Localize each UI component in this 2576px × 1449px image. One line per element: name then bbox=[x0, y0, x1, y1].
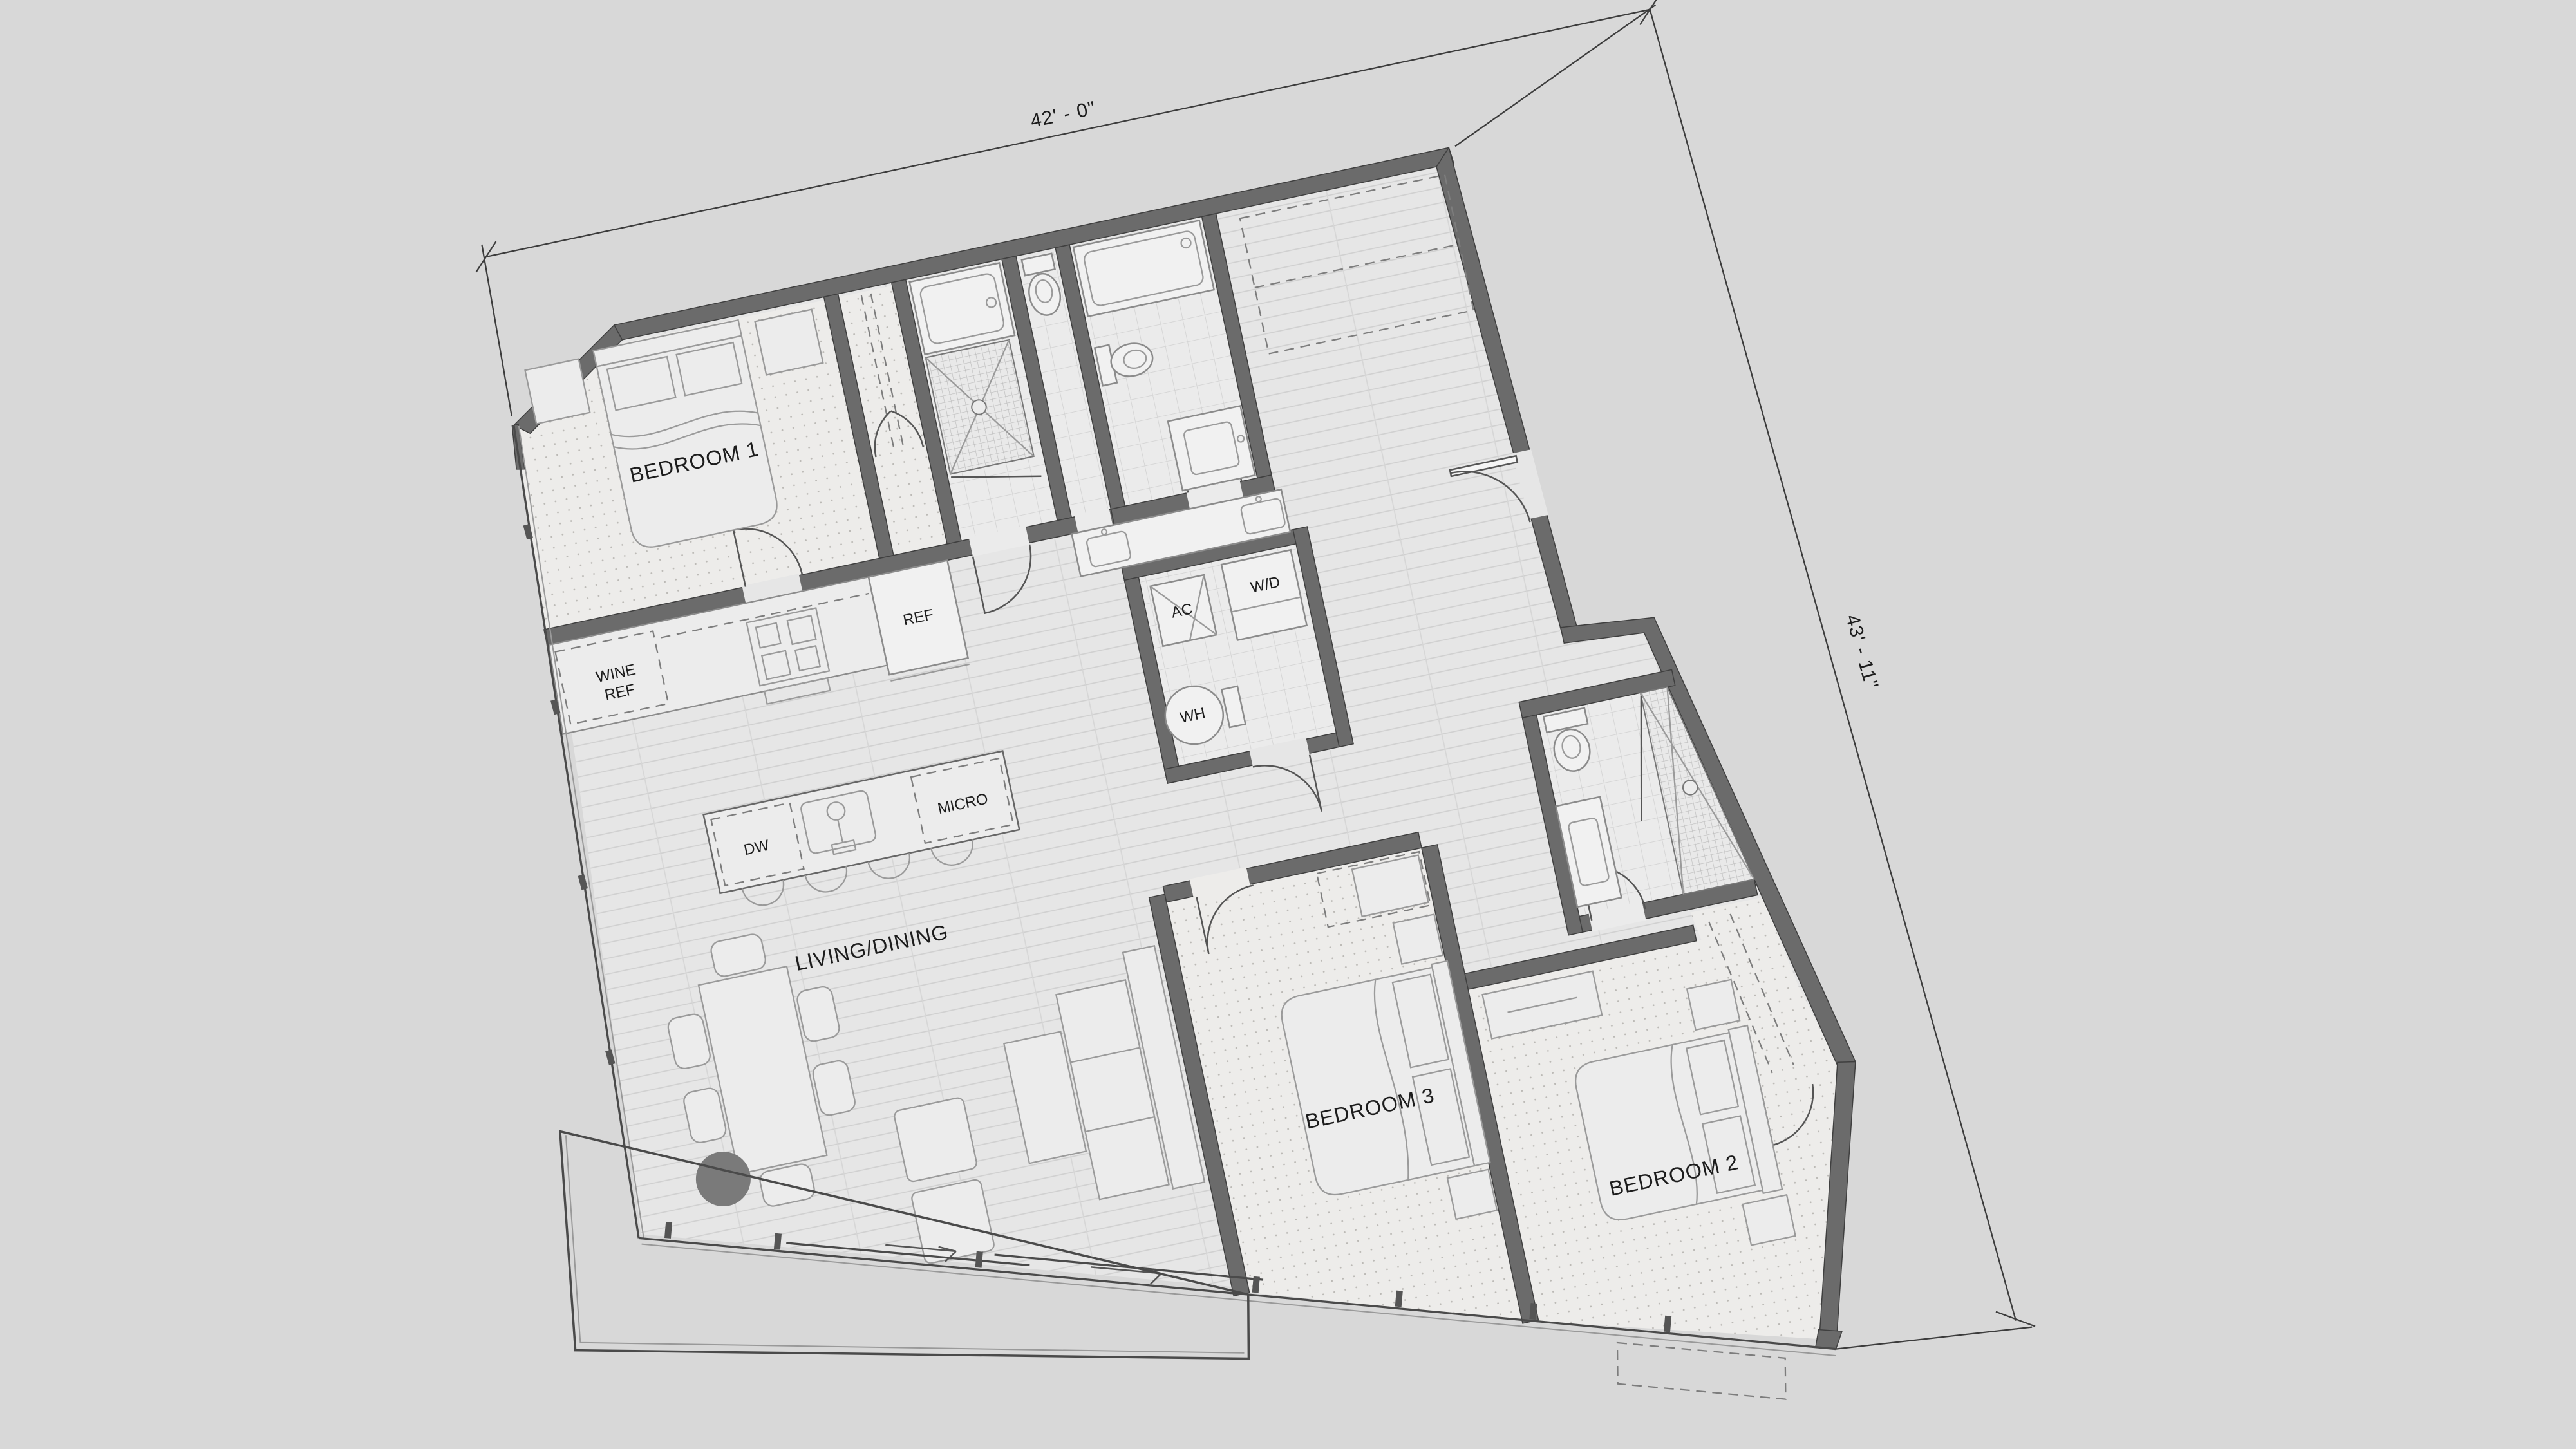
unit-plan: 42' - 0" 43' - 11" BEDROOM 1 LIVING/DINI… bbox=[343, 0, 2040, 1449]
floor-plan-page: 42' - 0" 43' - 11" BEDROOM 1 LIVING/DINI… bbox=[0, 0, 2576, 1449]
nightstand bbox=[755, 310, 823, 375]
mullion bbox=[578, 874, 588, 890]
vanity bbox=[1168, 406, 1255, 491]
nightstand bbox=[1687, 980, 1740, 1030]
mullion bbox=[605, 1049, 615, 1065]
bed2-mattress bbox=[1572, 1033, 1763, 1224]
lounge-chair bbox=[893, 1097, 977, 1183]
dim-extension bbox=[1435, 5, 1676, 147]
nightstand bbox=[525, 359, 590, 424]
dim-line-width bbox=[486, 10, 1650, 257]
nightstand bbox=[1743, 1195, 1796, 1245]
nightstand bbox=[1393, 914, 1443, 964]
floor-plan-svg: 42' - 0" 43' - 11" BEDROOM 1 LIVING/DINI… bbox=[0, 0, 2576, 1449]
dim-extension bbox=[1836, 1308, 2032, 1368]
dim-height-label: 43' - 11" bbox=[1841, 612, 1883, 691]
dim-width-label: 42' - 0" bbox=[1029, 97, 1098, 132]
nightstand bbox=[1447, 1170, 1497, 1219]
washer-dryer bbox=[1221, 550, 1307, 640]
dim-extension bbox=[476, 245, 518, 416]
